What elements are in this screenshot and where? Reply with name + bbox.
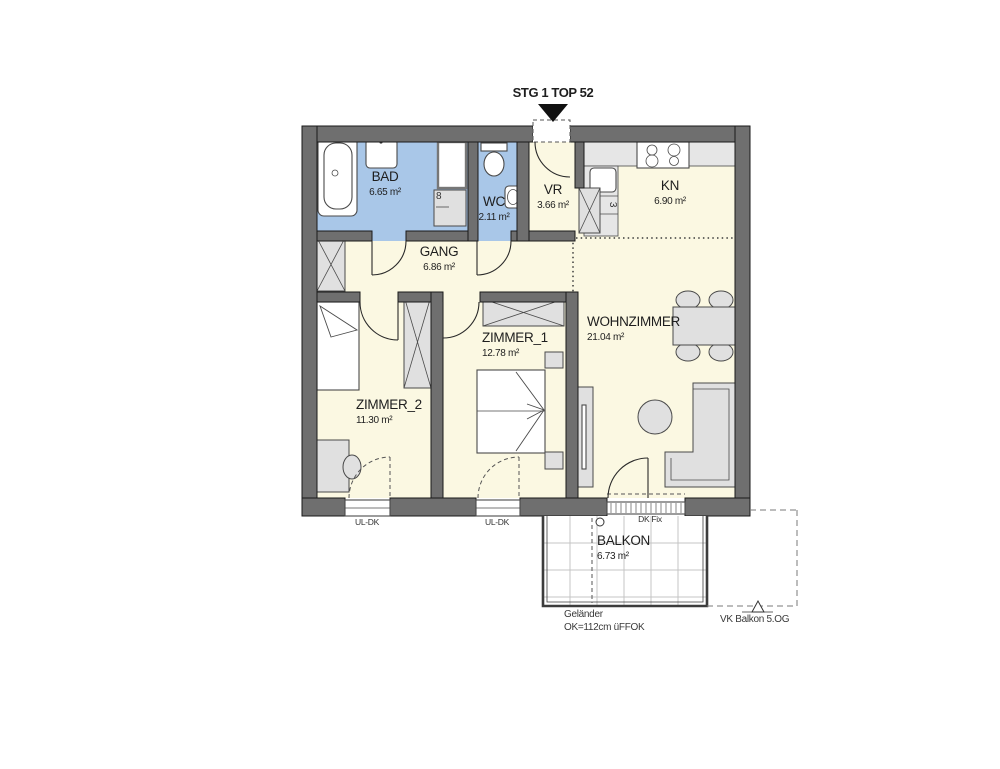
floor-plan-canvas: STG 1 TOP 52 BAD 6.65 m² WC 2.11 m² VR 3… [0,0,1000,769]
double-bed [477,370,545,453]
entrance-recess [533,120,570,142]
nightstand [545,452,563,469]
room-name: ZIMMER_2 [356,398,446,413]
room-area: 3.66 m² [521,200,585,211]
room-area: 11.30 m² [356,415,446,426]
coffee-table [638,400,672,434]
dining-chair [676,291,700,309]
floor-plan-drawing [0,0,1000,769]
window-type-label: UL-DK [472,518,522,527]
room-name: WC [462,195,526,210]
room-label-gang: GANG 6.86 m² [396,245,482,273]
railing-note: Geländer OK=112cm üFFOK [564,609,684,633]
room-label-zimmer1: ZIMMER_1 12.78 m² [482,331,572,359]
dining-chair [709,291,733,309]
dining-chair [676,343,700,361]
room-name: GANG [396,245,482,260]
fixed-glazing-label: DK Fix [628,515,672,524]
wall-right [735,126,750,516]
room-label-vr: VR 3.66 m² [521,183,585,211]
room-name: BAD [345,170,425,185]
room-label-kn: KN 6.90 m² [636,179,704,207]
appliance-number-bad: 8 [436,191,441,202]
toilet-tank [481,143,507,151]
room-name: VR [521,183,585,198]
wall-bottom [685,498,750,516]
room-area: 2.11 m² [462,212,526,223]
room-area: 12.78 m² [482,348,572,359]
railing-note-line1: Geländer [564,609,684,620]
room-label-wohnzimmer: WOHNZIMMER 21.04 m² [587,315,697,343]
room-label-bad: BAD 6.65 m² [345,170,425,198]
wall-bottom [390,498,476,516]
wall-hall-north [317,231,372,241]
window-type-label: UL-DK [342,518,392,527]
wall-zimmer1-living [566,292,578,498]
appliance-number-kn: 3 [607,202,618,207]
dining-chair [709,343,733,361]
railing-note-line2: OK=112cm üFFOK [564,622,684,633]
wall-top-left [302,126,533,142]
shower-cabinet [438,142,466,188]
room-area: 6.73 m² [597,551,687,562]
room-area: 6.90 m² [636,196,704,207]
balcony-above-projection [707,510,797,612]
wall-hall-south [480,292,578,302]
room-name: BALKON [597,534,687,549]
wall-zimmer2-zimmer1 [431,292,443,498]
downpipe [596,518,604,526]
entrance-arrow-icon [538,104,568,122]
toilet-bowl [484,152,504,176]
room-name: WOHNZIMMER [587,315,697,330]
room-area: 6.86 m² [396,262,482,273]
wall-hall-north [406,231,477,241]
tv [582,405,586,469]
room-area: 21.04 m² [587,332,697,343]
wall-bad-wc [468,142,478,241]
unit-title: STG 1 TOP 52 [487,86,619,100]
wall-bottom [520,498,607,516]
room-name: ZIMMER_1 [482,331,572,346]
desk-chair [343,455,361,479]
stove [637,142,689,168]
room-label-zimmer2: ZIMMER_2 11.30 m² [356,398,446,426]
balcony-above-label: VK Balkon 5.OG [720,614,810,625]
entrance [533,104,570,142]
wall-bottom [302,498,345,516]
room-label-balkon: BALKON 6.73 m² [597,534,687,562]
room-label-wc: WC 2.11 m² [462,195,526,223]
wall-vr-kn [575,142,584,188]
room-name: KN [636,179,704,194]
wall-left [302,126,317,516]
room-area: 6.65 m² [345,187,425,198]
wall-top-right [570,126,750,142]
wall-hall-south [317,292,360,302]
